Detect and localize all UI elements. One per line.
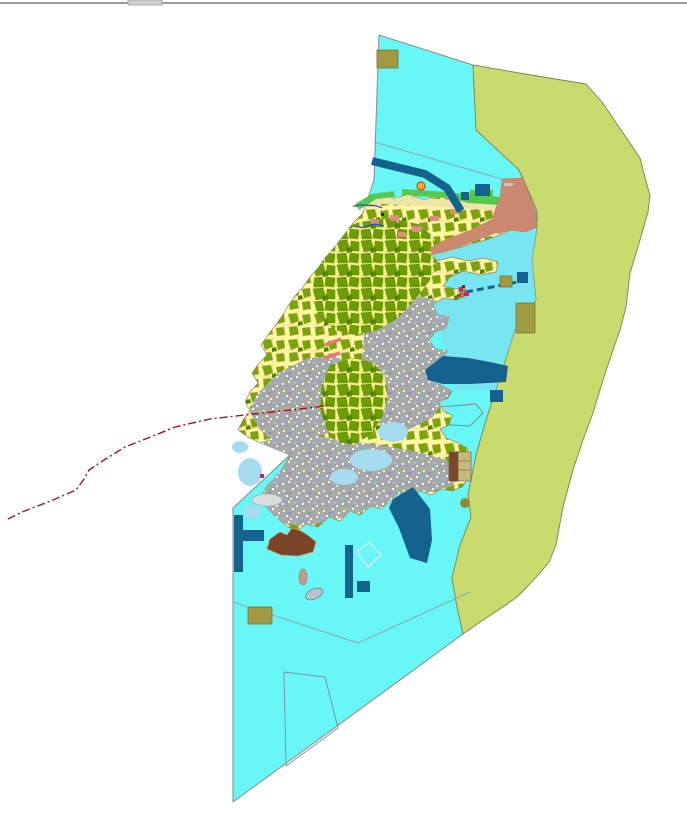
khaki-block-east-small [500,276,512,287]
navy-tee-horizontal [234,530,264,541]
salmon-patch-6 [398,232,406,237]
orange-point-marker [417,182,425,190]
lagoon-coast-w1 [238,458,262,486]
lagoon-south [330,469,358,485]
salmon-gray-dash [504,183,513,186]
map-layers [0,0,687,802]
salmon-patch-3 [430,216,439,221]
navy-square-south [357,581,370,592]
khaki-block-south [248,607,272,624]
islet-tan [299,569,307,585]
navy-block-center [490,390,503,402]
magenta-marker-2 [464,292,469,296]
lagoon-mid-1 [350,449,392,471]
map-stage [0,0,687,821]
salmon-patch-1 [390,215,399,221]
khaki-dot-se [460,498,470,508]
khaki-block-east-large [516,303,535,333]
legend-box-left [449,452,458,481]
coastal-flat-gray [252,494,282,506]
khaki-block-north [377,50,398,68]
lagoon-mid-2 [378,422,408,442]
top-splitter-line [0,2,687,4]
salmon-patch-4 [371,219,379,224]
legend-box-right [458,452,471,481]
navy-block-ne-1 [475,184,490,196]
top-splitter-tab[interactable] [128,0,162,5]
lagoon-coast-w2 [243,505,261,519]
magenta-marker-west [260,474,264,478]
salmon-patch-2 [412,226,422,232]
navy-block-ne-2 [461,192,469,200]
map-canvas[interactable] [0,0,687,821]
river-mouth-dot [381,213,384,216]
darkred-marker [462,285,465,288]
lagoon-coast-nw [232,441,248,453]
navy-tee-vertical [234,515,243,572]
magenta-marker-3 [457,294,461,297]
navy-bar-south [345,545,353,598]
